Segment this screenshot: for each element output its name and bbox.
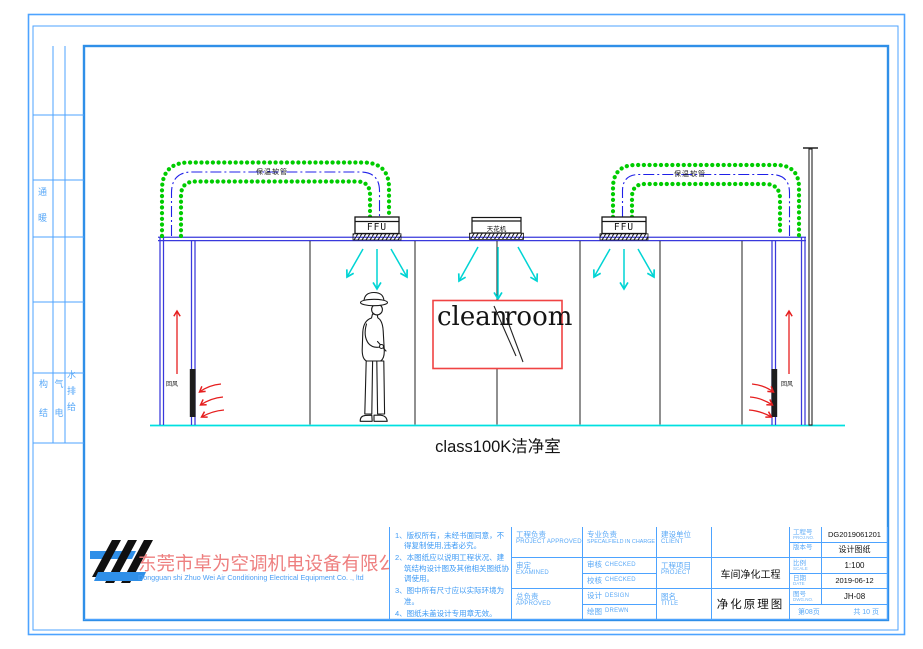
cell-checked-1: 审核 CHECKED	[583, 558, 657, 574]
cell-date-value: 2019-06-12	[822, 574, 888, 590]
return-air-label-left: 回风	[166, 379, 178, 388]
drawn-cn: 绘图	[587, 607, 602, 617]
ffu-right-label: FFU	[609, 222, 639, 233]
special-field-en: SPECALFIELD IN CHARGE	[587, 539, 655, 545]
cell-project-value: 车间净化工程	[712, 558, 790, 589]
clean-room-word-2: room	[504, 302, 572, 332]
drawing-caption: class100K洁净室	[417, 433, 579, 457]
examined-en: EXAMINED	[516, 570, 581, 577]
clean-room-word-1: clean	[437, 302, 508, 332]
project-cn: 工程项目	[661, 561, 710, 571]
cell-client-value	[712, 527, 790, 558]
discipline-label-electrical: 气电	[54, 370, 65, 428]
approved-cn: 总负责	[516, 592, 581, 602]
note-3: 3、图中所有尺寸应以实际环境为准。	[392, 586, 509, 607]
cell-project-approved: 工程负责 PROJECT APPROVED	[512, 527, 583, 558]
return-grille-right	[771, 369, 777, 417]
checked-2-en: CHECKED	[605, 577, 636, 584]
worker-figure	[360, 293, 387, 422]
approved-en: APPROVED	[516, 601, 581, 608]
special-field-cn: 专业负责	[587, 530, 655, 540]
supply-air-arrows	[347, 247, 654, 299]
cell-scale-label: 比例 SCALE	[790, 558, 822, 574]
note-4: 4、图纸未盖设计专用章无效。	[392, 609, 509, 620]
company-cell: 东莞市卓为空调机电设备有限公司 Dongguan shi Zhuo Wei Ai…	[84, 527, 390, 620]
date-en: DATE	[793, 582, 821, 587]
cell-scale-value: 1:100	[822, 558, 888, 574]
discipline-label-hvac: 通暖	[37, 179, 48, 231]
return-grille-left	[190, 369, 196, 417]
checked-1-cn: 审核	[587, 560, 602, 570]
return-air-label-right: 回风	[781, 379, 793, 388]
project-approved-cn: 工程负责	[516, 530, 581, 540]
cell-design: 设计 DESIGN	[583, 589, 657, 605]
client-cn: 建设单位	[661, 530, 710, 540]
checked-2-cn: 校核	[587, 576, 602, 586]
cell-date-label: 日期 DATE	[790, 574, 822, 590]
scale-en: SCALE	[793, 567, 821, 572]
title-cn: 图名	[661, 592, 710, 602]
client-en: CLIENT	[661, 539, 710, 546]
cell-client-label: 建设单位 CLIENT	[657, 527, 712, 558]
cell-project-label: 工程项目 PROJECT	[657, 558, 712, 589]
duct-label-left: 保温软管	[243, 167, 301, 177]
cell-proj-no-value: DG2019061201	[822, 527, 888, 543]
ceiling-unit-label: 天花机	[478, 223, 515, 233]
proj-no-en: PROJ.NO.	[793, 536, 821, 541]
project-approved-en: PROJECT APPROVED	[516, 539, 581, 546]
note-2: 2、本图纸应以说明工程状况、建筑结构设计图及其他相关图纸协调使用。	[392, 553, 509, 585]
project-en: PROJECT	[661, 570, 710, 577]
ceiling-unit-filter	[470, 233, 524, 239]
cell-dwg-no-value: JH-08	[822, 589, 888, 605]
cell-special-field: 专业负责 SPECALFIELD IN CHARGE	[583, 527, 657, 558]
design-cn: 设计	[587, 591, 602, 601]
cell-checked-2: 校核 CHECKED	[583, 574, 657, 590]
drawing-sheet: 通暖 构结 气电 水排给 保温软管 保温软管 FFU FFU 天花机 回风 回风…	[0, 0, 923, 649]
cell-dwg-no-label: 图号 DWG.NO.	[790, 589, 822, 605]
cell-title-value: 净化原理图	[712, 589, 790, 620]
note-1: 1、版权所有，未经书面同意，不得复制使用,违者必究。	[392, 531, 509, 552]
ffu-left-filter	[353, 234, 401, 240]
discipline-label-structure: 构结	[38, 370, 49, 428]
examined-cn: 审定	[516, 561, 581, 571]
design-en: DESIGN	[605, 593, 629, 600]
ffu-right-filter	[600, 234, 648, 240]
dwg-no-en: DWG.NO.	[793, 598, 821, 603]
notes-cell: 1、版权所有，未经书面同意，不得复制使用,违者必究。 2、本图纸应以说明工程状况…	[390, 527, 512, 620]
cell-version-value: 设计图纸	[822, 543, 888, 559]
version-cn: 版本号	[793, 544, 821, 551]
cell-version-label: 版本号	[790, 543, 822, 559]
page-total: 共 10 页	[853, 607, 879, 617]
company-name-en: Dongguan shi Zhuo Wei Air Conditioning E…	[138, 573, 390, 582]
title-en: TITLE	[661, 601, 710, 608]
cell-proj-no-label: 工程号 PROJ.NO.	[790, 527, 822, 543]
duct-label-right: 保温软管	[661, 169, 719, 179]
ffu-left-label: FFU	[362, 222, 392, 233]
cell-approved: 总负责 APPROVED	[512, 589, 583, 620]
checked-1-en: CHECKED	[605, 562, 636, 569]
cell-examined: 审定 EXAMINED	[512, 558, 583, 589]
cell-page-numbers: 第08页 共 10 页	[790, 605, 888, 621]
cell-drawn: 绘图 DREWN	[583, 605, 657, 621]
discipline-label-plumbing: 水排给	[66, 367, 77, 415]
page-current: 第08页	[798, 607, 820, 617]
cell-title-label: 图名 TITLE	[657, 589, 712, 620]
drawn-en: DREWN	[605, 608, 629, 615]
